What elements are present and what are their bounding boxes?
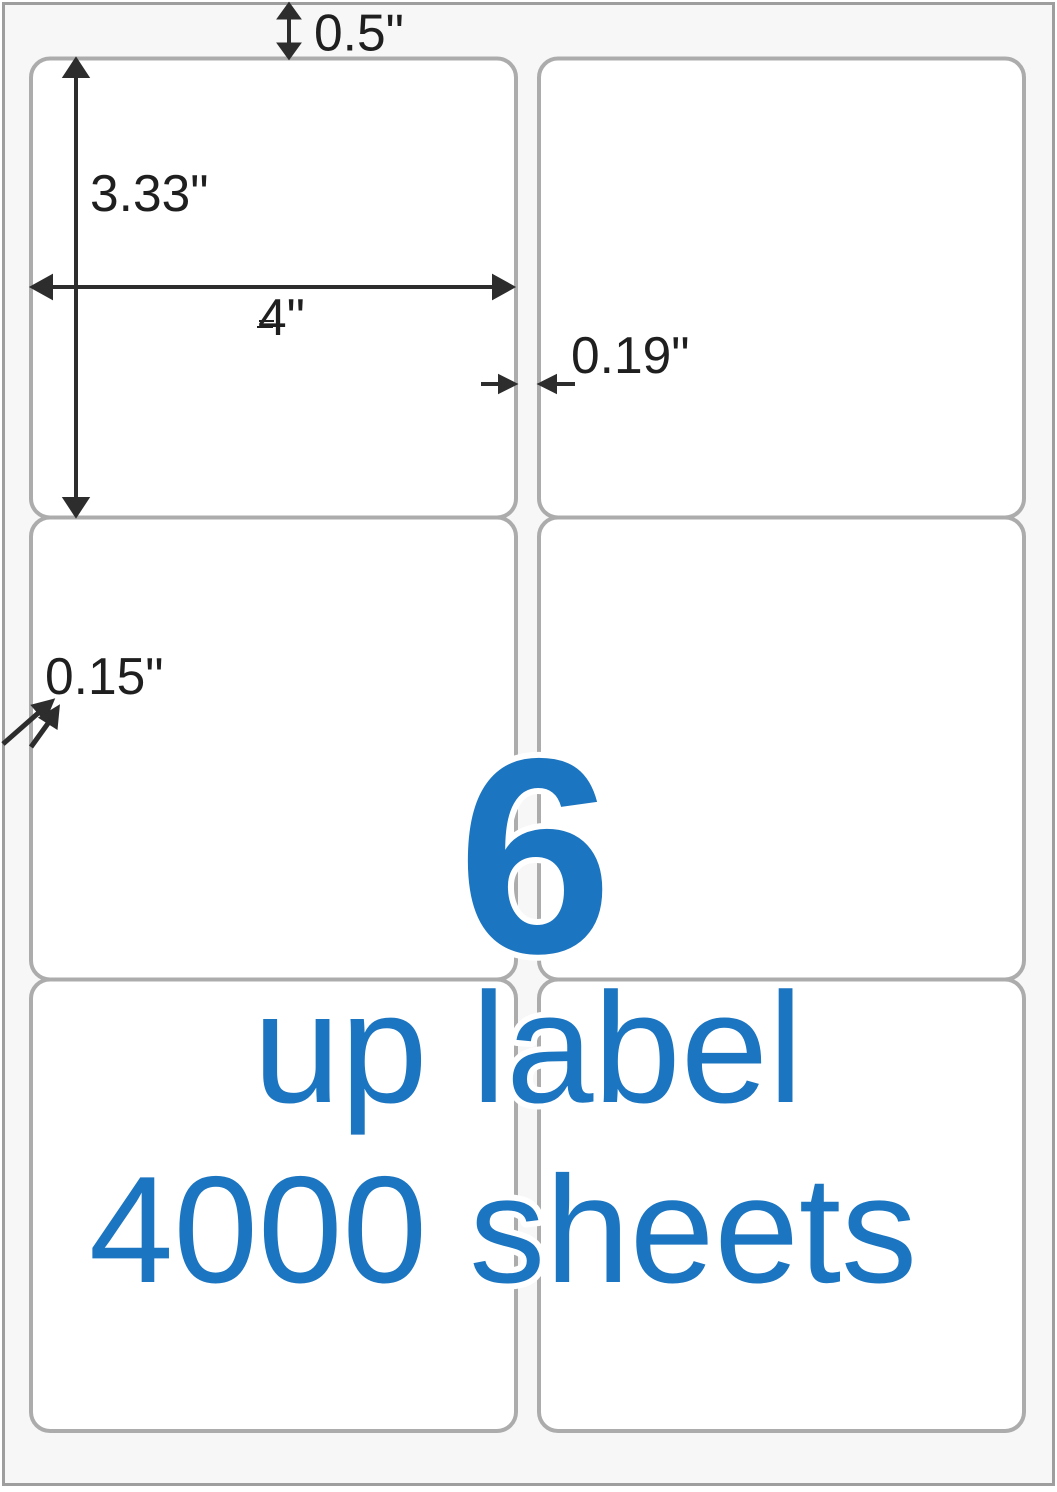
svg-text:0.5": 0.5": [314, 4, 404, 62]
svg-text:3.33": 3.33": [90, 164, 209, 222]
svg-text:0.19": 0.19": [571, 326, 690, 384]
svg-text:4000 sheets: 4000 sheets: [89, 1145, 917, 1315]
svg-text:4": 4": [258, 288, 305, 346]
svg-text:0.15": 0.15": [45, 647, 164, 705]
svg-text:up label: up label: [253, 961, 803, 1136]
